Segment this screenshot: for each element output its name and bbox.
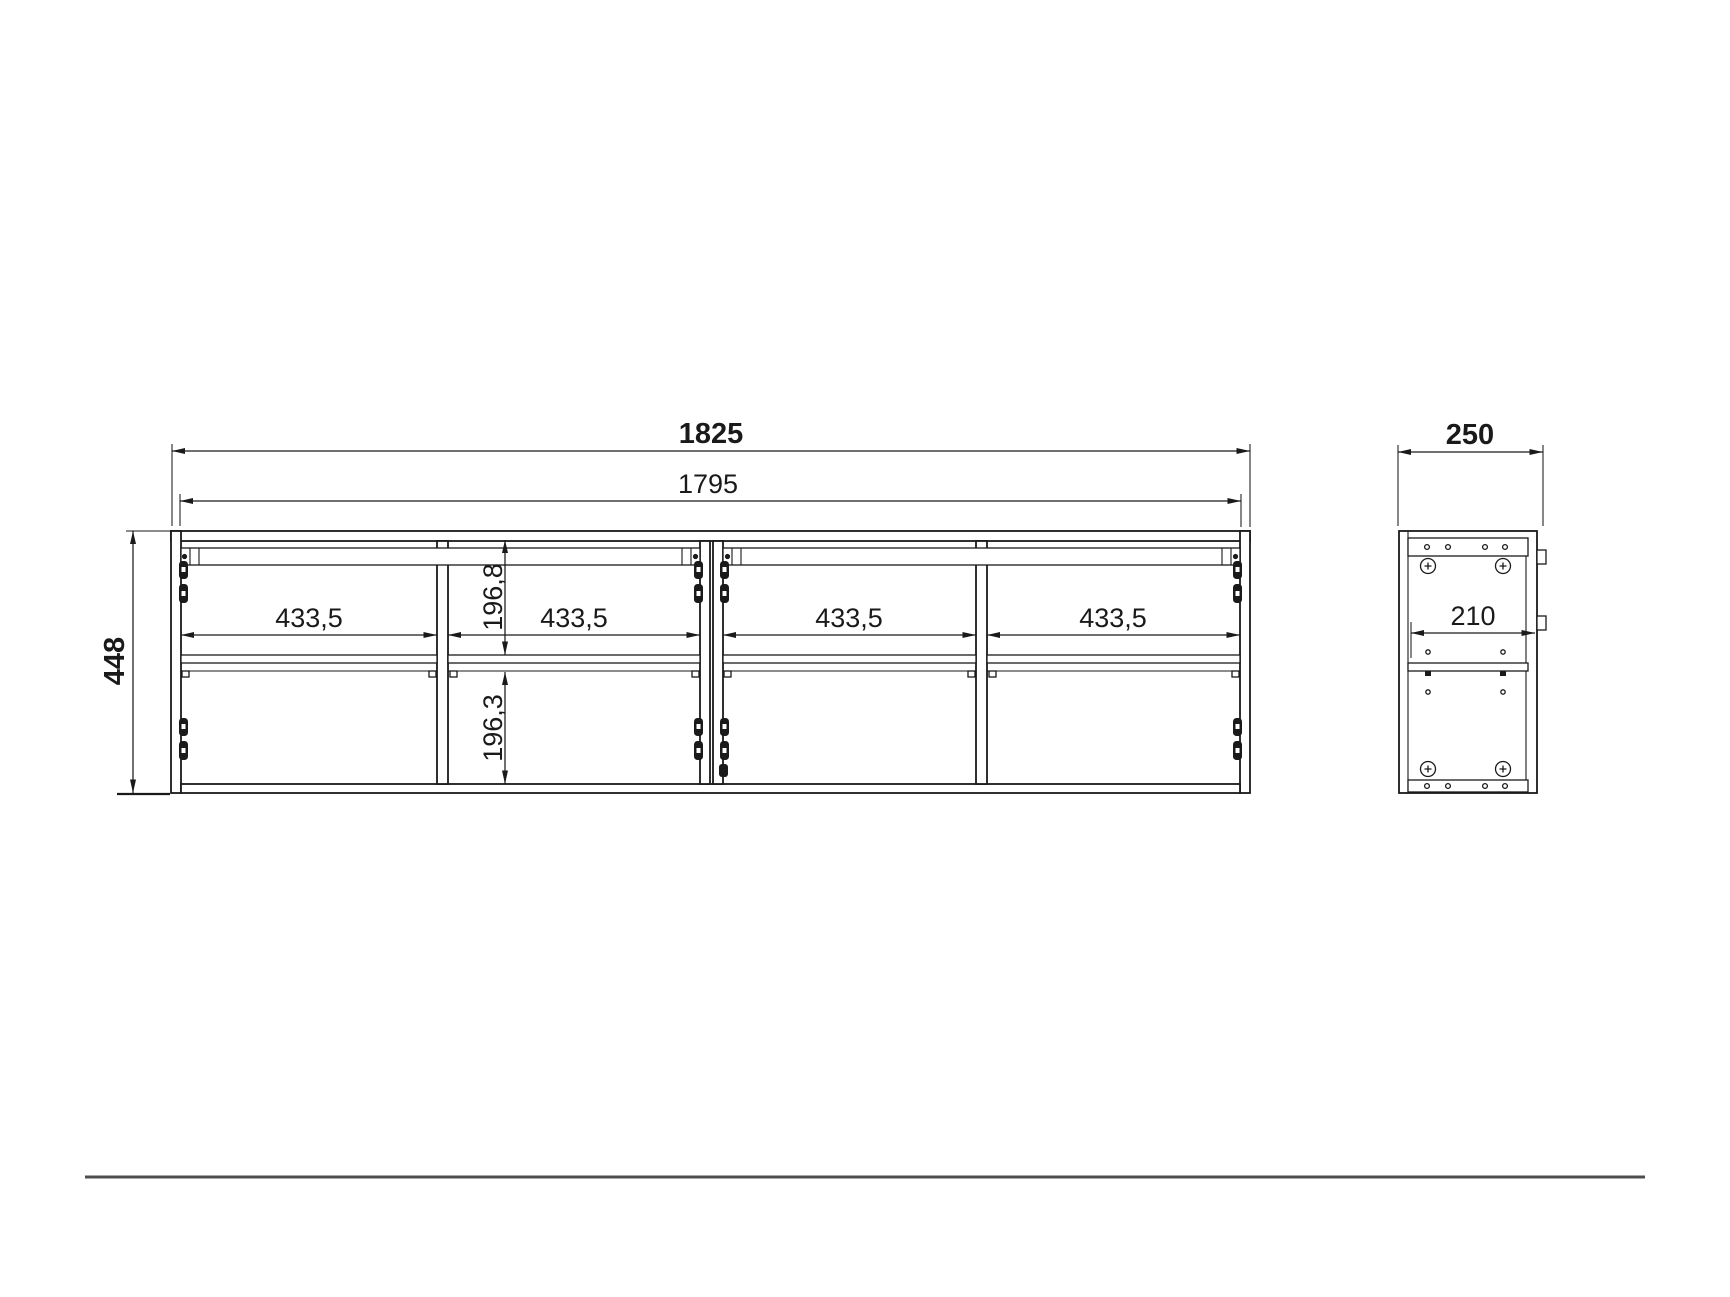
screw-hole (1425, 784, 1430, 789)
front-top-board (171, 531, 1250, 541)
screw-hole (1503, 545, 1508, 550)
divider-right (976, 541, 987, 784)
hinge-extra-bump (719, 764, 728, 777)
shelf-board (987, 655, 1240, 663)
dim-compartment-3-label: 433,5 (815, 603, 883, 633)
rail-fixing-dot (1233, 554, 1238, 559)
dim-compartment-1-label: 433,5 (275, 603, 343, 633)
shelf-pin-hole (1426, 650, 1430, 654)
shelf-board (181, 655, 437, 663)
dim-compartment-1: 433,5 (181, 603, 437, 635)
shelf-pin-hole (1501, 650, 1505, 654)
side-outer-panel (1399, 531, 1537, 793)
wall-mount-clip (1537, 550, 1546, 564)
dim-height: 448 (99, 531, 170, 794)
dim-compartment-3: 433,5 (723, 603, 976, 635)
screw-hole (1446, 545, 1451, 550)
dim-depth: 250 (1398, 419, 1543, 526)
side-top-rail (1408, 538, 1528, 556)
top-rail-left (181, 548, 700, 565)
cam-screw (1496, 559, 1511, 574)
dim-height-label: 448 (99, 637, 131, 685)
shelf-board (448, 655, 700, 663)
cam-screw (1496, 762, 1511, 777)
rail-fixing-dot (725, 554, 730, 559)
dim-compartment-4-label: 433,5 (1079, 603, 1147, 633)
rail-fixing-dot (693, 554, 698, 559)
dim-inner-depth-label: 210 (1450, 601, 1495, 631)
screw-hole (1425, 545, 1430, 550)
dim-upper-height-label: 196,8 (478, 563, 508, 631)
shelf-pin (1500, 671, 1506, 676)
dim-inner-width-label: 1795 (678, 469, 738, 499)
dim-compartment-2-label: 433,5 (540, 603, 608, 633)
shelf-pin (1425, 671, 1431, 676)
front-bottom-board (181, 784, 1240, 793)
screw-hole (1503, 784, 1508, 789)
top-rail-right (723, 548, 1240, 565)
dim-depth-label: 250 (1446, 419, 1494, 451)
screw-hole (1483, 784, 1488, 789)
wall-mount-clip (1537, 616, 1546, 630)
front-view (171, 531, 1250, 793)
shelf-pin-hole (1501, 690, 1505, 694)
dim-lower-height-label: 196,3 (478, 694, 508, 762)
dim-compartment-4: 433,5 (987, 603, 1240, 635)
divider-left (437, 541, 448, 784)
side-view (1399, 531, 1546, 793)
shelf-pin-hole (1426, 690, 1430, 694)
dim-lower-height: 196,3 (478, 672, 508, 784)
front-dimensions: 1825 1795 448 433,5 433,5 433,5 (99, 418, 1250, 794)
side-shelf-edge (1408, 663, 1528, 671)
rail-fixing-dot (182, 554, 187, 559)
screw-hole (1483, 545, 1488, 550)
side-bottom-rail (1408, 780, 1528, 792)
shelf-board (723, 655, 976, 663)
screw-hole (1446, 784, 1451, 789)
technical-drawing-page: 1825 1795 448 433,5 433,5 433,5 (0, 0, 1730, 1297)
technical-drawing-canvas: 1825 1795 448 433,5 433,5 433,5 (0, 0, 1730, 1297)
dim-inner-width: 1795 (180, 469, 1241, 527)
dim-total-width-label: 1825 (679, 418, 744, 450)
cam-screw (1421, 559, 1436, 574)
cam-screw (1421, 762, 1436, 777)
